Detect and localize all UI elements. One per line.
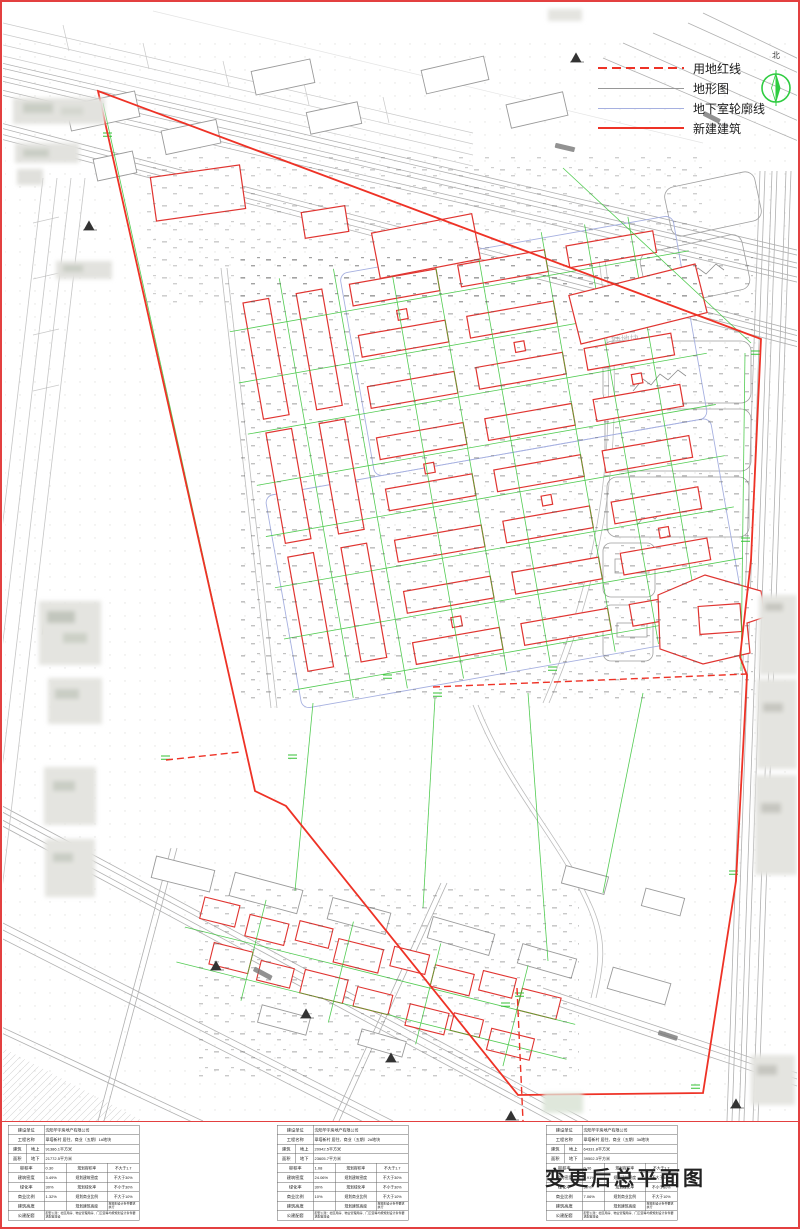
spec-cell: 商业比例 [277,1192,313,1202]
spec-cell: 20942.5平方米 [313,1144,408,1154]
spec-cell: 建筑高度 [546,1201,582,1211]
spec-cell: 建筑 [546,1144,564,1154]
spec-cell: 容积率 [8,1163,44,1173]
spec-cell: 规划建筑密度 [66,1173,107,1183]
spec-cell: 规划建筑高度 [604,1201,645,1211]
spec-cell: 24.06% [313,1173,335,1183]
spec-cell: 建筑密度 [277,1173,313,1183]
north-label: 北 [754,52,798,60]
spec-cell: 工程名称 [277,1135,313,1145]
drawing-title: 变更后总平面图 [545,1162,706,1191]
spec-cell: 规划商业比例 [66,1192,107,1202]
spec-cell: 容积率 [277,1163,313,1173]
legend-row-newbuild: 新建建筑 [598,118,784,138]
annotation-texture [143,153,703,303]
legend-label: 用地红线 [693,60,741,77]
spec-cell: 不大于30% [107,1173,139,1183]
spec-cell: 沈阳华宇房地产有限公司 [313,1125,408,1135]
spec-cell: 规划建筑密度 [335,1173,376,1183]
spec-cell: 建筑 [277,1144,295,1154]
spec-cell: 规划商业比例 [604,1192,645,1202]
spec-cell: 绿化率 [8,1182,44,1192]
spec-cell: 规划绿化率 [335,1182,376,1192]
legend-label: 地形图 [693,80,729,97]
spec-table-1: 建设单位沈阳华宇房地产有限公司工程名称翠塔新村 居住、商业（五期）1#地块建筑地… [8,1125,140,1221]
spec-cell: 30% [44,1182,66,1192]
spec-cell: 不小于30% [107,1182,139,1192]
newbuild-sample-icon [598,127,684,129]
spec-cell: 0.30 [44,1163,66,1173]
spec-cell: 规划容积率 [335,1163,376,1173]
spec-cell: 建筑高度 [277,1201,313,1211]
spec-cell: 3.49% [44,1173,66,1183]
spec-cell: 不小于30% [376,1182,408,1192]
spec-cell: 地下 [26,1154,44,1164]
spec-cell: 建筑 [8,1144,26,1154]
spec-cell: 工程名称 [546,1135,582,1145]
spec-cell: 不大于1.7 [376,1163,408,1173]
spec-cell: 规划绿化率 [66,1182,107,1192]
spec-cell: 沈阳华宇房地产有限公司 [582,1125,677,1135]
annotation-texture [241,251,753,706]
spec-cell: 沈阳华宇房地产有限公司 [44,1125,139,1135]
spec-cell: 配套公建：社区用房、物业管理用房、门卫室等均按规划设计条件要求配置建设 [582,1211,677,1221]
spec-cell: 规划建筑高度 [66,1201,107,1211]
spec-cell: 工程名称 [8,1135,44,1145]
spec-cell: 建筑密度 [8,1173,44,1183]
spec-cell: 按规划设计条件要求执行 [645,1201,677,1211]
spec-cell: 21772.5平方米 [44,1154,139,1164]
spec-cell: 建设单位 [546,1125,582,1135]
spec-cell [313,1201,335,1211]
spec-cell: 地上 [564,1144,582,1154]
spec-cell: 翠塔新村 居住、商业（五期）3#地块 [582,1135,677,1145]
north-arrow-icon: 北 [754,52,798,119]
spec-cell: 不大于10% [645,1192,677,1202]
redline-sample-icon [598,67,684,69]
spec-cell: 23605.7平方米 [313,1154,408,1164]
basement-sample-icon [598,108,684,109]
spec-cell [44,1201,66,1211]
site-plan-svg: 2#地块 [3,3,797,1121]
spec-cell: 规划建筑高度 [335,1201,376,1211]
spec-cell: 地下 [295,1154,313,1164]
spec-cell: 30% [313,1182,335,1192]
spec-cell: 不大于10% [376,1192,408,1202]
spec-cell: 面积 [8,1154,26,1164]
table-separator-line [2,1121,798,1122]
spec-cell: 绿化率 [277,1182,313,1192]
spec-cell: 按规划设计条件要求执行 [376,1201,408,1211]
spec-cell: 公建配套 [8,1211,44,1221]
spec-cell: 地上 [26,1144,44,1154]
spec-cell: 公建配套 [546,1211,582,1221]
spec-cell: 建设单位 [277,1125,313,1135]
spec-cell: 商业比例 [546,1192,582,1202]
spec-cell: 商业比例 [8,1192,44,1202]
spec-table-2: 建设单位沈阳华宇房地产有限公司工程名称翠塔新村 居住、商业（五期）2#地块建筑地… [277,1125,409,1221]
spec-cell: 64331.8平方米 [582,1144,677,1154]
spec-cell: 地上 [295,1144,313,1154]
spec-cell: 不大于10% [107,1192,139,1202]
spec-cell: 7.06% [582,1192,604,1202]
spec-cell: 翠塔新村 居住、商业（五期）2#地块 [313,1135,408,1145]
legend-label: 新建建筑 [693,120,741,137]
spec-cell: 建筑高度 [8,1201,44,1211]
spec-cell: 按规划设计条件要求执行 [107,1201,139,1211]
spec-cell: 91386.1平方米 [44,1144,139,1154]
drawing-sheet: 2#地块 [0,0,800,1229]
spec-cell: 翠塔新村 居住、商业（五期）1#地块 [44,1135,139,1145]
spec-cell: 1.08 [313,1163,335,1173]
spec-cell: 不大于1.7 [107,1163,139,1173]
spec-cell: 10% [313,1192,335,1202]
spec-cell: 不大于30% [376,1173,408,1183]
spec-cell: 公建配套 [277,1211,313,1221]
spec-cell: 面积 [277,1154,295,1164]
spec-cell: 规划容积率 [66,1163,107,1173]
spec-cell: 配套公建：社区用房、物业管理用房、门卫室等均按规划设计条件要求配置建设 [313,1211,408,1221]
spec-cell [582,1201,604,1211]
topo-sample-icon [598,88,684,89]
annotation-texture [199,889,579,1079]
spec-cell: 建设单位 [8,1125,44,1135]
spec-cell: 规划商业比例 [335,1192,376,1202]
spec-cell: 配套公建：社区用房、物业管理用房、门卫室等均按规划设计条件要求配置建设 [44,1211,139,1221]
spec-cell: 1.32% [44,1192,66,1202]
